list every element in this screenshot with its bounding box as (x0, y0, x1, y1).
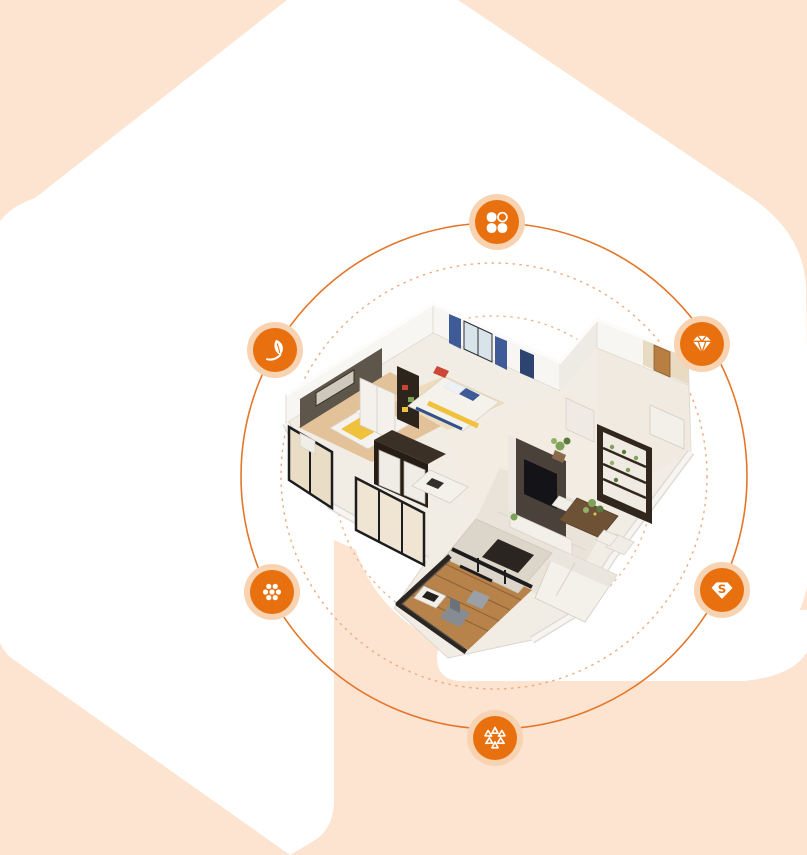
diamond-gem-icon (689, 331, 715, 357)
badge-dots[interactable] (244, 564, 300, 620)
clover-petals-icon (484, 209, 510, 235)
triangle-ring-icon (482, 725, 508, 751)
badge-leaf[interactable] (247, 322, 303, 378)
monstera-leaf-3 (551, 438, 557, 444)
shelf-deco-green (408, 397, 414, 402)
monstera-leaf-1 (556, 442, 565, 451)
shelf-plant-6 (614, 478, 618, 482)
badge-gem[interactable] (674, 316, 730, 372)
shelf-plant-2 (622, 450, 626, 454)
curtain-right (495, 336, 507, 370)
hero-illustration: S (0, 0, 807, 855)
monstera-leaf-2 (564, 438, 571, 445)
leaf-icon (262, 337, 288, 363)
s-gem-icon: S (709, 577, 735, 603)
shelf-plant-3 (634, 456, 638, 460)
shelf-plant-5 (626, 468, 630, 472)
table-plant-3 (583, 507, 589, 513)
console-plant (511, 514, 518, 521)
table-plant-2 (597, 506, 604, 513)
media-wall-side (508, 434, 516, 523)
table-plant-1 (588, 499, 596, 507)
badge-s-gem[interactable]: S (694, 562, 750, 618)
s-letter: S (718, 582, 727, 596)
shelf-deco-yellow (402, 407, 408, 412)
shelf-deco-red (402, 385, 408, 390)
table-deco (594, 513, 597, 516)
dot-cluster-icon (259, 579, 285, 605)
background-graphic (0, 0, 807, 855)
shelf-plant-4 (610, 461, 614, 465)
curtain-left (449, 314, 461, 349)
badge-triangles[interactable] (467, 710, 523, 766)
badge-petals[interactable] (469, 194, 525, 250)
shelf-plant-1 (610, 445, 614, 449)
